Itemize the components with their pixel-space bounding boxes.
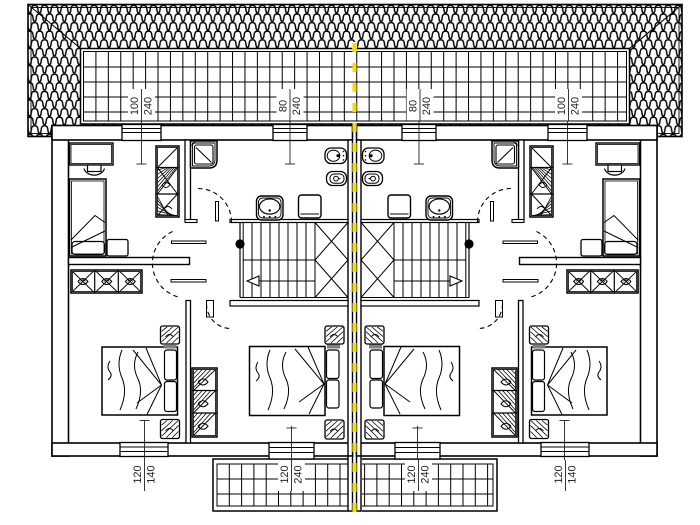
svg-text:240: 240: [293, 465, 305, 483]
svg-text:100: 100: [556, 97, 568, 115]
svg-text:120: 120: [553, 465, 565, 483]
svg-text:240: 240: [421, 97, 433, 115]
svg-text:120: 120: [279, 465, 291, 483]
svg-text:120: 120: [132, 465, 144, 483]
svg-text:80: 80: [408, 100, 420, 112]
svg-text:100: 100: [129, 97, 141, 115]
svg-text:120: 120: [406, 465, 418, 483]
svg-text:140: 140: [146, 465, 158, 483]
svg-text:80: 80: [278, 100, 290, 112]
svg-text:240: 240: [291, 97, 303, 115]
svg-text:240: 240: [420, 465, 432, 483]
svg-text:240: 240: [143, 97, 155, 115]
svg-text:240: 240: [570, 97, 582, 115]
svg-text:140: 140: [567, 465, 579, 483]
